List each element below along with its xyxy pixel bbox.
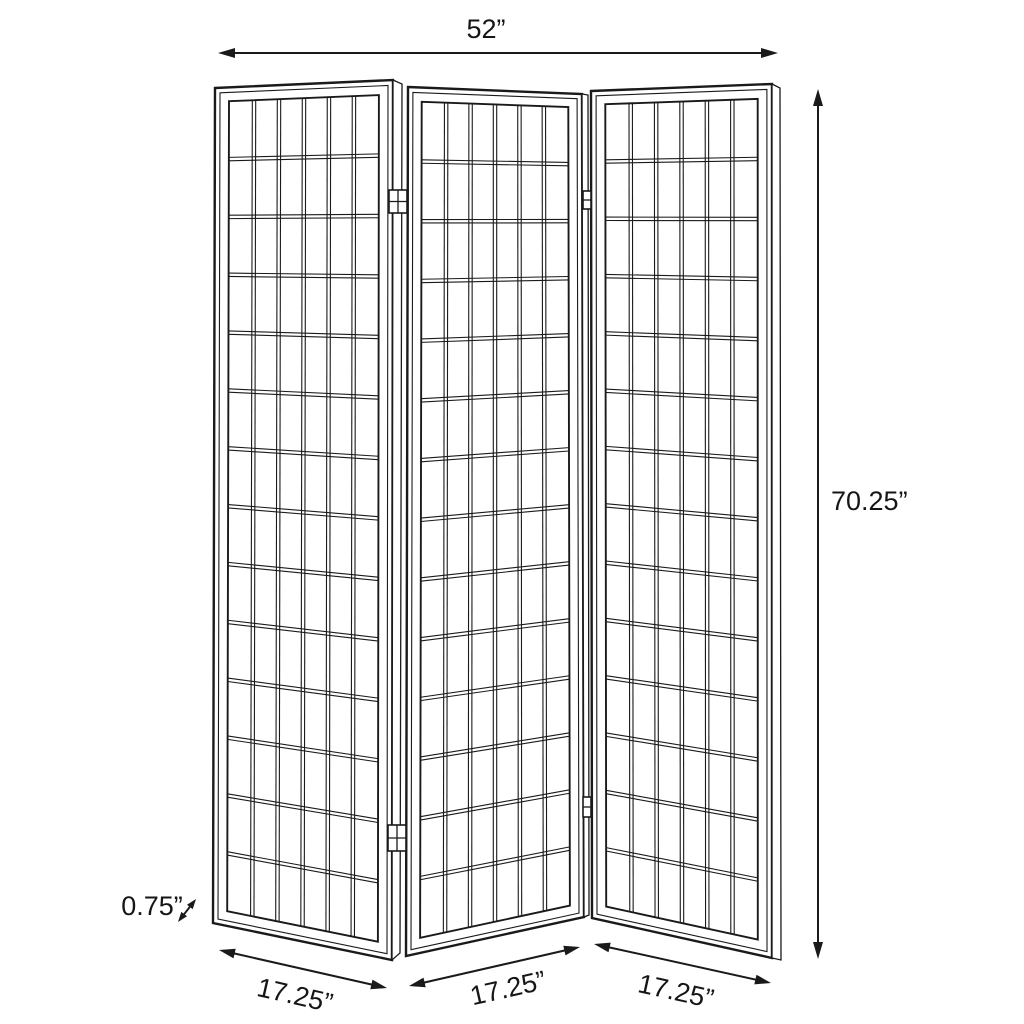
- panel-left: [213, 80, 393, 960]
- panel-thickness-label: 0.75”: [121, 891, 183, 921]
- panel-left-width-label: 17.25”: [254, 972, 335, 1018]
- panel-center: [406, 87, 584, 956]
- panel-right-width-label: 17.25”: [635, 968, 716, 1014]
- dimension-arrow-overall-width: [218, 48, 778, 58]
- overall-height-label: 70.25”: [831, 486, 908, 516]
- overall-width-label: 52”: [466, 14, 505, 44]
- dimension-arrow-overall-height: [813, 89, 823, 959]
- diagram-canvas: 52” 70.25” 0.75” 17.25” 17.25” 17.25”: [0, 0, 1024, 1024]
- panel-right: [591, 84, 772, 958]
- panel-center-width-label: 17.25”: [467, 965, 548, 1011]
- room-divider-dimension-diagram: 52” 70.25” 0.75” 17.25” 17.25” 17.25”: [0, 0, 1024, 1024]
